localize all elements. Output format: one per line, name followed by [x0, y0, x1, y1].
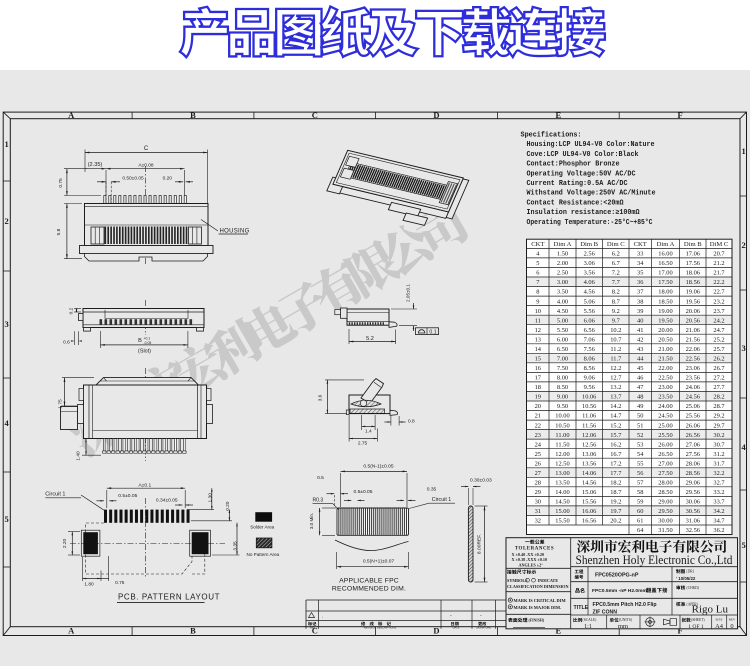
svg-text:26.7: 26.7 — [713, 365, 725, 372]
svg-text:Dim A: Dim A — [554, 241, 572, 248]
svg-text:REV: REV — [310, 626, 316, 630]
svg-text:4.06: 4.06 — [584, 279, 595, 286]
svg-text:TOLERANCES: TOLERANCES — [515, 546, 554, 551]
svg-text:Operating Temperature:-25°C~+8: Operating Temperature:-25°C~+85°C — [527, 218, 653, 227]
svg-text:61: 61 — [637, 518, 643, 525]
svg-text:33.2: 33.2 — [713, 489, 724, 496]
svg-text:54: 54 — [637, 451, 644, 458]
svg-text:B: B — [190, 110, 196, 120]
svg-text:9.2: 9.2 — [612, 308, 620, 315]
svg-text:10.7: 10.7 — [610, 336, 622, 343]
svg-text:(FINISH): (FINISH) — [529, 618, 545, 622]
svg-text:10.06: 10.06 — [582, 394, 596, 401]
svg-text:6.56: 6.56 — [584, 327, 595, 334]
svg-text:52: 52 — [637, 432, 643, 439]
svg-text:6.00: 6.00 — [557, 336, 568, 343]
svg-text:9.50: 9.50 — [557, 403, 568, 410]
svg-text:11.00: 11.00 — [555, 432, 569, 439]
svg-text:40: 40 — [637, 317, 643, 324]
svg-text:55: 55 — [637, 460, 643, 467]
svg-text:15: 15 — [535, 356, 541, 363]
svg-text:8.2: 8.2 — [612, 289, 620, 296]
svg-text:(UNITS): (UNITS) — [619, 618, 633, 622]
svg-text:0: 0 — [730, 623, 733, 630]
svg-text:41: 41 — [637, 327, 643, 334]
svg-text:25.7: 25.7 — [713, 346, 725, 353]
svg-text:1 OF 1: 1 OF 1 — [688, 624, 704, 630]
svg-text:46: 46 — [637, 375, 643, 382]
svg-text:25.06: 25.06 — [686, 403, 700, 410]
svg-text:28: 28 — [535, 480, 541, 487]
svg-text:13.00: 13.00 — [555, 470, 569, 477]
svg-text:27.7: 27.7 — [713, 384, 725, 391]
svg-text:TITLE: TITLE — [574, 605, 589, 611]
svg-text:Specifications:: Specifications: — [521, 132, 582, 140]
svg-text:15.06: 15.06 — [582, 489, 596, 496]
svg-text:31: 31 — [535, 508, 541, 515]
svg-text:20: 20 — [535, 403, 541, 410]
svg-text:17.06: 17.06 — [686, 251, 700, 258]
svg-text:0.50±0.05: 0.50±0.05 — [122, 175, 144, 181]
svg-text:14.2: 14.2 — [610, 403, 621, 410]
svg-text:23.50: 23.50 — [658, 394, 672, 401]
svg-text:16.06: 16.06 — [582, 508, 596, 515]
svg-text:17.56: 17.56 — [686, 260, 700, 267]
svg-text:22.06: 22.06 — [686, 346, 700, 353]
svg-text:21.00: 21.00 — [658, 346, 672, 353]
svg-text:0.35: 0.35 — [427, 487, 437, 493]
svg-text:28.7: 28.7 — [713, 403, 725, 410]
svg-text:11.56: 11.56 — [582, 422, 596, 429]
svg-text:23.7: 23.7 — [713, 308, 725, 315]
svg-text:24.50: 24.50 — [658, 413, 672, 420]
svg-text:F: F — [677, 110, 682, 120]
svg-text:37: 37 — [637, 289, 644, 296]
svg-text:9.56: 9.56 — [584, 384, 595, 391]
svg-text:25: 25 — [535, 451, 541, 458]
svg-text:32: 32 — [535, 518, 541, 525]
svg-text:D: D — [433, 110, 439, 120]
svg-text:27.00: 27.00 — [658, 460, 672, 467]
svg-text:29.06: 29.06 — [686, 480, 700, 487]
svg-text:3: 3 — [4, 319, 8, 329]
svg-text:Dim C: Dim C — [607, 241, 625, 248]
svg-text:20.06: 20.06 — [686, 308, 700, 315]
svg-text:HOUSING: HOUSING — [220, 229, 250, 235]
svg-text:21.7: 21.7 — [713, 270, 725, 277]
svg-text:-0.05: -0.05 — [144, 341, 152, 345]
svg-text:16.00: 16.00 — [658, 251, 672, 258]
svg-text:2: 2 — [4, 216, 8, 226]
svg-text:29.7: 29.7 — [713, 422, 725, 429]
svg-text:X ±0.40 .XX ±0.20: X ±0.40 .XX ±0.20 — [512, 552, 545, 557]
svg-text:0.30±0.03: 0.30±0.03 — [470, 478, 492, 484]
svg-text:Housing:LCP UL94-V0 Color:Natu: Housing:LCP UL94-V0 Color:Nature — [527, 141, 655, 149]
svg-text:Dim B: Dim B — [580, 241, 598, 248]
svg-text:11: 11 — [535, 317, 541, 324]
svg-text:33: 33 — [637, 251, 643, 258]
svg-text:9.7: 9.7 — [612, 317, 621, 324]
svg-text:23.2: 23.2 — [713, 298, 724, 305]
svg-text:17.7: 17.7 — [610, 470, 622, 477]
svg-text:0.1: 0.1 — [429, 329, 436, 335]
svg-text:12.50: 12.50 — [555, 460, 569, 467]
svg-text:27.50: 27.50 — [658, 470, 672, 477]
svg-text:15.2: 15.2 — [610, 422, 621, 429]
svg-text:30.00: 30.00 — [658, 518, 672, 525]
svg-text:14.7: 14.7 — [610, 413, 622, 420]
svg-text:10.56: 10.56 — [582, 403, 596, 410]
svg-text:4.00: 4.00 — [557, 298, 568, 305]
svg-text:25.00: 25.00 — [658, 422, 672, 429]
svg-text:25.2: 25.2 — [713, 336, 724, 343]
svg-text:REVISION DESCRIPTIONS: REVISION DESCRIPTIONS — [364, 626, 397, 630]
svg-text:42: 42 — [637, 336, 643, 343]
svg-text:2.05±0.1: 2.05±0.1 — [405, 284, 410, 302]
svg-text:3.06: 3.06 — [584, 260, 595, 267]
svg-text:18.7: 18.7 — [610, 489, 622, 496]
svg-text:16.50: 16.50 — [658, 260, 672, 267]
svg-text:Rigo Lu: Rigo Lu — [692, 603, 729, 615]
svg-text:4: 4 — [4, 418, 9, 428]
svg-text:13.06: 13.06 — [582, 451, 596, 458]
svg-text:1.4: 1.4 — [365, 428, 372, 434]
svg-text:28.50: 28.50 — [658, 489, 672, 496]
svg-text:26: 26 — [535, 460, 541, 467]
svg-text:6.50: 6.50 — [557, 346, 568, 353]
svg-text:17: 17 — [535, 375, 542, 382]
svg-text:34.2: 34.2 — [713, 508, 724, 515]
svg-text:16.56: 16.56 — [582, 518, 596, 525]
svg-text:22.56: 22.56 — [686, 356, 700, 363]
svg-text:A: A — [68, 110, 75, 120]
svg-text:0.75: 0.75 — [115, 580, 125, 586]
svg-text:19.50: 19.50 — [658, 317, 672, 324]
svg-text:Contact:Phosphor Bronze: Contact:Phosphor Bronze — [527, 161, 620, 169]
svg-text:0.34±0.05: 0.34±0.05 — [156, 497, 178, 503]
svg-text:24.06: 24.06 — [686, 384, 700, 391]
svg-text:16.2: 16.2 — [610, 441, 621, 448]
svg-text:11.06: 11.06 — [582, 413, 596, 420]
svg-text:R0.3: R0.3 — [313, 498, 324, 504]
svg-text:5.8: 5.8 — [56, 228, 62, 235]
svg-text:7.7: 7.7 — [612, 279, 621, 286]
svg-text:.: . — [322, 614, 323, 620]
svg-text:Solder Area: Solder Area — [250, 525, 274, 530]
svg-text:1: 1 — [4, 139, 8, 149]
svg-text:8.00: 8.00 — [557, 375, 568, 382]
svg-text:2.50: 2.50 — [557, 270, 568, 277]
svg-text:Shenzhen Holy Electronic Co.,L: Shenzhen Holy Electronic Co.,Ltd — [576, 553, 733, 567]
svg-text:60: 60 — [637, 508, 643, 515]
svg-text:15.7: 15.7 — [610, 432, 622, 439]
svg-text:ANGLES ±2°: ANGLES ±2° — [519, 563, 544, 568]
svg-text:23.56: 23.56 — [686, 375, 700, 382]
svg-text:36.2: 36.2 — [713, 527, 724, 534]
svg-text:2.00: 2.00 — [557, 260, 568, 267]
svg-text:22.50: 22.50 — [658, 375, 672, 382]
svg-text:49: 49 — [637, 403, 643, 410]
svg-text:15.00: 15.00 — [555, 508, 569, 515]
svg-text:5.50: 5.50 — [557, 327, 568, 334]
svg-text:14: 14 — [535, 346, 542, 353]
svg-text:Cove:LCP UL94-V0 Color:Black: Cove:LCP UL94-V0 Color:Black — [527, 151, 639, 159]
svg-text:23.00: 23.00 — [658, 384, 672, 391]
svg-text:4: 4 — [741, 442, 746, 452]
svg-text:X ±0.38 .XXX ±0.10: X ±0.38 .XXX ±0.10 — [512, 557, 548, 562]
svg-text:13.7: 13.7 — [610, 394, 622, 401]
svg-text:Current Rating:0.5A AC/DC: Current Rating:0.5A AC/DC — [527, 180, 628, 188]
svg-text:25.50: 25.50 — [658, 432, 672, 439]
svg-text:0.75: 0.75 — [58, 178, 64, 188]
svg-text:5: 5 — [741, 540, 745, 550]
svg-text:28.56: 28.56 — [686, 470, 700, 477]
svg-text:13: 13 — [535, 336, 541, 343]
svg-text:29.00: 29.00 — [658, 499, 672, 506]
svg-text:A±0.08: A±0.08 — [138, 162, 154, 168]
svg-text:MARK IS MAJOR DIM.: MARK IS MAJOR DIM. — [514, 605, 562, 610]
svg-text:57: 57 — [637, 480, 644, 487]
svg-text:D: D — [433, 626, 439, 636]
svg-text:mm: mm — [618, 623, 628, 630]
svg-text:5.00: 5.00 — [557, 317, 568, 324]
svg-text:10: 10 — [535, 308, 541, 315]
svg-text:29: 29 — [535, 489, 541, 496]
svg-text:1.40: 1.40 — [76, 451, 82, 461]
svg-text:B: B — [138, 338, 142, 344]
svg-text:Circuit 1: Circuit 1 — [45, 492, 65, 498]
svg-text:CKT: CKT — [531, 241, 544, 248]
svg-text:24.2: 24.2 — [713, 317, 724, 324]
svg-text:7.06: 7.06 — [584, 336, 595, 343]
svg-text:CLASSIFICATION DIMENSION: CLASSIFICATION DIMENSION — [507, 584, 568, 589]
svg-text:19.56: 19.56 — [686, 298, 700, 305]
svg-text:Circuit 1: Circuit 1 — [432, 497, 451, 503]
svg-text:21: 21 — [535, 413, 541, 420]
svg-text:C: C — [144, 146, 149, 152]
svg-text:12.00: 12.00 — [555, 451, 569, 458]
svg-text:0.8: 0.8 — [408, 418, 415, 424]
svg-text:19.06: 19.06 — [686, 289, 700, 296]
svg-text:FPC0.5mm -nP H2.0mm: FPC0.5mm -nP H2.0mm — [592, 588, 647, 594]
svg-text:FPC0520OPG-nP: FPC0520OPG-nP — [595, 573, 639, 579]
svg-text:CKT: CKT — [634, 241, 647, 248]
svg-text:51: 51 — [637, 422, 643, 429]
svg-text:5.06: 5.06 — [584, 298, 595, 305]
svg-text:18.56: 18.56 — [686, 279, 700, 286]
svg-text:(Slot): (Slot) — [138, 349, 151, 355]
svg-text:1.30: 1.30 — [207, 493, 213, 503]
svg-text:20.50: 20.50 — [658, 336, 672, 343]
svg-text:18.00: 18.00 — [658, 289, 672, 296]
svg-text:9.06: 9.06 — [584, 375, 595, 382]
svg-text:8: 8 — [536, 289, 539, 296]
svg-text:22: 22 — [535, 422, 541, 429]
svg-text:30.2: 30.2 — [713, 432, 724, 439]
svg-text:SIGNATURE: SIGNATURE — [476, 626, 491, 630]
svg-text:17.50: 17.50 — [658, 279, 672, 286]
svg-text:2.75: 2.75 — [358, 441, 368, 447]
svg-text:19: 19 — [535, 394, 541, 401]
svg-text:19.2: 19.2 — [610, 499, 621, 506]
svg-text:Withstand Voltage:250V AC/Minu: Withstand Voltage:250V AC/Minute — [527, 190, 656, 198]
svg-text:24.56: 24.56 — [686, 394, 700, 401]
svg-text:35: 35 — [637, 270, 643, 277]
svg-text:26.50: 26.50 — [658, 451, 672, 458]
svg-text:15.56: 15.56 — [582, 499, 596, 506]
svg-text:30.06: 30.06 — [686, 499, 700, 506]
svg-text:23: 23 — [535, 432, 541, 439]
svg-text:0.5±0.05: 0.5±0.05 — [118, 493, 137, 499]
svg-text:50: 50 — [637, 413, 643, 420]
svg-text:12.7: 12.7 — [610, 375, 622, 382]
svg-text:36: 36 — [637, 279, 643, 286]
svg-text:3.50: 3.50 — [557, 289, 568, 296]
svg-text:12.56: 12.56 — [582, 441, 596, 448]
svg-text:4.50: 4.50 — [557, 308, 568, 315]
svg-text:26.56: 26.56 — [686, 432, 700, 439]
svg-text:31.7: 31.7 — [713, 460, 725, 467]
svg-text:2.20: 2.20 — [62, 539, 68, 549]
svg-text:32.7: 32.7 — [713, 480, 725, 487]
svg-text:7.00: 7.00 — [557, 356, 568, 363]
svg-text:18.50: 18.50 — [658, 298, 672, 305]
svg-text:FPC0.5mm Pitch H2.0 Flip: FPC0.5mm Pitch H2.0 Flip — [593, 602, 657, 608]
svg-text:APPLICABLE FPC: APPLICABLE FPC — [339, 578, 399, 585]
svg-text:31.50: 31.50 — [658, 527, 672, 534]
svg-text:3.35: 3.35 — [233, 541, 239, 551]
svg-text:0.5±0.05: 0.5±0.05 — [353, 489, 372, 495]
svg-text:3: 3 — [741, 343, 745, 353]
svg-text:11.2: 11.2 — [610, 346, 621, 353]
svg-text:53: 53 — [637, 441, 643, 448]
svg-text:19.7: 19.7 — [610, 508, 622, 515]
svg-text:34: 34 — [637, 260, 644, 267]
svg-text:10.00: 10.00 — [555, 413, 569, 420]
svg-text:Operating Voltage:50V AC/DC: Operating Voltage:50V AC/DC — [527, 170, 636, 178]
svg-text:' 10/05/22: ' 10/05/22 — [676, 576, 696, 581]
svg-text:15.50: 15.50 — [555, 518, 569, 525]
svg-text:Dim A: Dim A — [657, 241, 675, 248]
svg-text:14.56: 14.56 — [582, 480, 596, 487]
svg-text:A±0.1: A±0.1 — [138, 483, 151, 489]
svg-text:10.2: 10.2 — [610, 327, 621, 334]
svg-text:11.7: 11.7 — [610, 356, 622, 363]
svg-text:58: 58 — [637, 489, 643, 496]
svg-text:16.7: 16.7 — [610, 451, 622, 458]
svg-text:26.2: 26.2 — [713, 356, 724, 363]
svg-text:(SCALE): (SCALE) — [583, 618, 598, 622]
svg-text:9.00: 9.00 — [557, 394, 568, 401]
svg-text:14.00: 14.00 — [555, 489, 569, 496]
svg-text:0.2: 0.2 — [69, 307, 75, 314]
svg-text:14.06: 14.06 — [582, 470, 596, 477]
svg-text:27.2: 27.2 — [713, 375, 724, 382]
svg-text:32.56: 32.56 — [686, 527, 700, 534]
svg-text:44: 44 — [637, 356, 644, 363]
svg-text:13.56: 13.56 — [582, 460, 596, 467]
svg-text:32.2: 32.2 — [713, 470, 724, 477]
svg-text:6: 6 — [536, 270, 539, 277]
svg-text:43: 43 — [637, 346, 643, 353]
svg-text:27.06: 27.06 — [686, 441, 700, 448]
svg-text:Contact Resistance:<20mΩ: Contact Resistance:<20mΩ — [527, 199, 625, 207]
svg-text:12.06: 12.06 — [582, 432, 596, 439]
svg-text:3.6: 3.6 — [318, 394, 324, 401]
svg-text:0.5: 0.5 — [317, 475, 324, 481]
svg-text:13.2: 13.2 — [610, 384, 621, 391]
svg-text:20.00: 20.00 — [658, 327, 672, 334]
svg-text:28.00: 28.00 — [658, 480, 672, 487]
svg-text:20.7: 20.7 — [713, 251, 725, 258]
svg-text:18.2: 18.2 — [610, 480, 621, 487]
svg-text:B: B — [190, 626, 196, 636]
svg-text:18: 18 — [535, 384, 541, 391]
svg-text:12: 12 — [535, 327, 541, 334]
svg-text:8.00REF.: 8.00REF. — [476, 534, 482, 554]
svg-text:28.06: 28.06 — [686, 460, 700, 467]
svg-text:22.00: 22.00 — [658, 365, 672, 372]
svg-text:28.2: 28.2 — [713, 394, 724, 401]
svg-text:1: 1 — [741, 146, 745, 156]
svg-text:0.5(N-1)±0.05: 0.5(N-1)±0.05 — [363, 464, 393, 470]
svg-text:26.06: 26.06 — [686, 422, 700, 429]
svg-text:27: 27 — [535, 470, 542, 477]
svg-text:MARK IS CRITICAL DIM: MARK IS CRITICAL DIM — [514, 598, 567, 603]
svg-text:PCB. PATTERN LAYOUT: PCB. PATTERN LAYOUT — [118, 592, 220, 601]
svg-text:REV: REV — [729, 618, 736, 622]
svg-text:(CHKD): (CHKD) — [687, 586, 700, 590]
svg-text:20.2: 20.2 — [610, 518, 621, 525]
svg-text:6.06: 6.06 — [584, 317, 595, 324]
svg-text:13.50: 13.50 — [555, 480, 569, 487]
svg-text:ZIF CONN: ZIF CONN — [593, 610, 618, 616]
svg-text:26.00: 26.00 — [658, 441, 672, 448]
svg-text:29.50: 29.50 — [658, 508, 672, 515]
svg-text:4.56: 4.56 — [584, 289, 595, 296]
svg-text:0.5(N+1)±0.07: 0.5(N+1)±0.07 — [363, 559, 395, 565]
svg-text:7.50: 7.50 — [557, 365, 568, 372]
svg-text:12.2: 12.2 — [610, 365, 621, 372]
svg-text:31.2: 31.2 — [713, 451, 724, 458]
svg-text:7.56: 7.56 — [584, 346, 595, 353]
svg-text:30.56: 30.56 — [686, 508, 700, 515]
svg-text:8.50: 8.50 — [557, 384, 568, 391]
svg-text:24: 24 — [535, 441, 542, 448]
svg-text:38: 38 — [637, 298, 643, 305]
svg-text:1.50: 1.50 — [557, 251, 568, 258]
svg-text:0.20: 0.20 — [163, 175, 173, 181]
svg-text:6.7: 6.7 — [612, 260, 621, 267]
svg-text:A: A — [68, 626, 75, 636]
svg-text:21.50: 21.50 — [658, 356, 672, 363]
svg-text:24.00: 24.00 — [658, 403, 672, 410]
svg-text:8.06: 8.06 — [584, 356, 595, 363]
svg-text:0.20: 0.20 — [225, 501, 231, 511]
svg-text:DiM C: DiM C — [710, 241, 729, 248]
svg-text:27.56: 27.56 — [686, 451, 700, 458]
svg-text:21.56: 21.56 — [686, 336, 700, 343]
svg-text:7.2: 7.2 — [612, 270, 620, 277]
svg-text:0.6: 0.6 — [63, 340, 70, 346]
svg-text:3.56: 3.56 — [584, 270, 595, 277]
svg-text:SYMBOLS: SYMBOLS — [507, 578, 528, 583]
svg-text:33.7: 33.7 — [713, 499, 725, 506]
svg-text:22.2: 22.2 — [713, 279, 724, 286]
svg-text:8.56: 8.56 — [584, 365, 595, 372]
svg-text:64: 64 — [637, 527, 644, 534]
svg-text:23.06: 23.06 — [686, 365, 700, 372]
